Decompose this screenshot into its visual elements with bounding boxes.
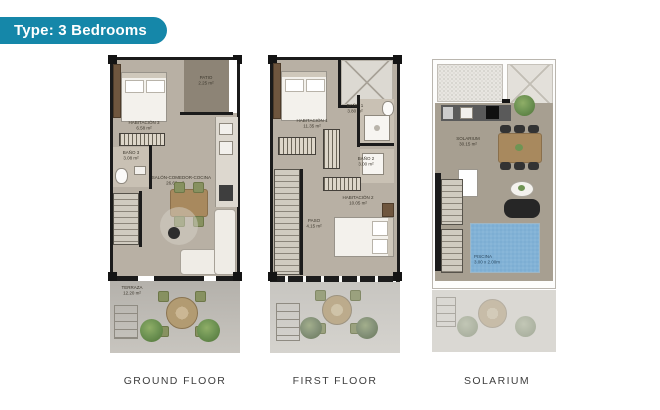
corner-post	[108, 55, 117, 64]
room-label-hall: PASO 4.15 m²	[302, 219, 326, 229]
corner-post	[233, 272, 242, 281]
corner-post	[268, 272, 277, 281]
stairs	[441, 179, 463, 225]
bush	[140, 319, 163, 342]
wardrobe	[382, 203, 394, 217]
closet-hatch	[323, 177, 361, 191]
room-label-bathroom2: BAÑO 2 3.00 m²	[348, 157, 384, 167]
kitchen-sink	[219, 123, 233, 135]
chair	[158, 291, 169, 302]
outdoor-sofa	[504, 199, 540, 218]
chair	[174, 182, 185, 193]
terrace-table	[322, 295, 352, 325]
radiator-hatch	[119, 133, 165, 146]
room-area: 2.25 m²	[187, 81, 226, 86]
table-plant	[515, 144, 523, 151]
patio-gap	[229, 60, 237, 113]
headboard	[388, 218, 393, 256]
exterior-stairs	[114, 305, 138, 339]
caption-first-floor: FIRST FLOOR	[270, 375, 400, 387]
room-area: 10.05 m²	[336, 201, 381, 206]
room-area: 30.15 m²	[450, 142, 486, 147]
rug	[160, 207, 198, 245]
stairs	[113, 193, 139, 245]
gravel-area	[437, 64, 503, 102]
room-area: 3.08 m²	[117, 156, 146, 161]
room-area: 4.15 m²	[302, 224, 326, 229]
type-badge: Type: 3 Bedrooms	[0, 17, 167, 44]
room-label-bedroom3: HABITACIÓN 3 6.58 m²	[125, 121, 164, 131]
bush	[457, 316, 478, 337]
corner-post	[393, 55, 402, 64]
chair	[500, 125, 511, 133]
hob	[486, 106, 499, 119]
bed	[121, 72, 167, 122]
pool	[470, 223, 540, 273]
stove	[219, 141, 233, 155]
potted-plant	[514, 95, 535, 116]
pillow	[125, 80, 144, 93]
stairs	[441, 229, 463, 273]
chair	[195, 291, 206, 302]
pillow	[372, 239, 388, 254]
chair	[193, 182, 204, 193]
caption-ground-floor: GROUND FLOOR	[110, 375, 240, 387]
closet-hatch	[323, 129, 340, 169]
room-area: 3.00 m²	[348, 162, 384, 167]
exterior-stairs	[276, 303, 300, 341]
room-label-bathroom1: BAÑO 1 3.80 m²	[338, 104, 373, 114]
fridge	[219, 185, 233, 201]
chair	[528, 125, 539, 133]
stair-wall	[139, 191, 142, 247]
wardrobe	[113, 64, 121, 118]
armchair	[168, 227, 180, 239]
interior-wall	[180, 112, 233, 115]
room-area: 3.00 x 2.00m	[474, 260, 504, 265]
pillow	[306, 79, 325, 92]
interior-wall	[338, 60, 341, 108]
corner-post	[108, 272, 117, 281]
room-label-pool: PISCINA 3.00 x 2.00m	[474, 255, 504, 265]
corner-post	[393, 272, 402, 281]
exterior-stairs	[436, 297, 456, 327]
patio-area	[184, 60, 229, 113]
chair	[350, 290, 361, 301]
terrace-table	[478, 299, 507, 328]
room-name: SALÓN-COMEDOR-COCINA	[152, 176, 199, 181]
interior-wall	[357, 95, 360, 147]
terrace-ghost-furniture	[432, 290, 556, 352]
sofa-chaise	[214, 209, 236, 275]
chair	[500, 162, 511, 170]
bush	[515, 316, 536, 337]
bush	[197, 319, 220, 342]
bed	[334, 217, 394, 257]
room-label-bedroom1: HABITACIÓN 1 11.35 m²	[291, 119, 333, 129]
shower-drain	[374, 125, 380, 131]
room-area: 6.58 m²	[125, 126, 164, 131]
sink	[460, 107, 473, 119]
toilet	[115, 168, 128, 184]
stairs	[274, 169, 300, 275]
room-name: HABITACIÓN 3	[125, 121, 164, 126]
chair	[528, 162, 539, 170]
room-label-patio: PATIO 2.25 m²	[187, 76, 226, 86]
solarium-plan: SOLARIUM 30.15 m² PISCINA 3.00 x 2.00m	[430, 57, 560, 357]
caption-solarium: SOLARIUM	[432, 375, 562, 387]
chair	[315, 290, 326, 301]
bush	[356, 317, 378, 339]
bed	[281, 71, 327, 121]
pillow	[285, 79, 304, 92]
terrace-table	[166, 297, 198, 329]
room-label-bathroom3: BAÑO 3 3.08 m²	[117, 151, 146, 161]
room-area: 3.80 m²	[338, 109, 373, 114]
headboard	[122, 73, 166, 78]
chair	[514, 162, 525, 170]
wardrobe	[273, 63, 281, 119]
room-label-solarium: SOLARIUM 30.15 m²	[450, 137, 486, 147]
mini-fridge	[443, 107, 453, 119]
sink	[134, 166, 146, 175]
table-plant	[518, 185, 525, 191]
closet-hatch	[278, 137, 316, 155]
interior-wall	[360, 143, 394, 146]
headboard	[282, 72, 326, 77]
pillow	[372, 221, 388, 236]
first-floor-plan: HABITACIÓN 1 11.35 m² BAÑO 1 3.80 m² BAÑ…	[270, 57, 400, 357]
room-name: HABITACIÓN 1	[291, 119, 333, 124]
toilet	[382, 101, 394, 116]
room-area: 12.20 m²	[117, 291, 147, 296]
room-label-bedroom2: HABITACIÓN 2 10.05 m²	[336, 196, 381, 206]
chair	[514, 125, 525, 133]
bush	[300, 317, 322, 339]
ground-floor-plan: PATIO 2.25 m² HABITACIÓN 3 6.58 m² BAÑO …	[110, 57, 240, 357]
pillow	[146, 80, 165, 93]
stair-wall	[300, 169, 303, 275]
room-label-terrace: TERRAZA 12.20 m²	[117, 286, 147, 296]
